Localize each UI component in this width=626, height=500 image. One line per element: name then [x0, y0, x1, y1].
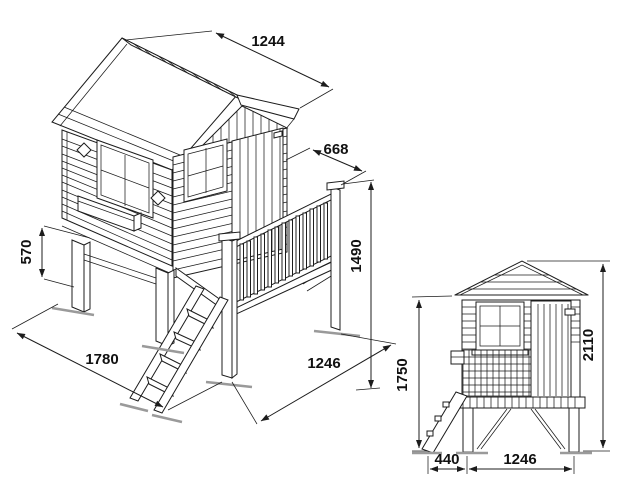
ladder-front [422, 392, 467, 453]
dim-footprint-depth-label: 1780 [85, 351, 118, 368]
dim-footprint-width-label: 1246 [307, 355, 340, 372]
dim-porch-depth: 668 [286, 141, 366, 185]
dim-stilt-height-label: 570 [18, 239, 35, 264]
isometric-view: 1244 668 1490 570 1780 1246 [12, 31, 396, 424]
playhouse-technical-drawing: 1244 668 1490 570 1780 1246 [0, 0, 626, 500]
front-window-elev [472, 302, 528, 355]
door-latch [565, 309, 575, 315]
roof-front [455, 261, 588, 295]
flower-box-side [451, 351, 464, 364]
door-elev [531, 301, 575, 399]
front-wall [451, 300, 580, 399]
dim-ladder-depth-label: 440 [434, 451, 459, 468]
dim-eave-height-label: 1750 [394, 358, 411, 391]
deck-front [457, 397, 585, 408]
leg [569, 408, 579, 452]
porch-post-front [222, 238, 237, 378]
dim-post-height: 1490 [343, 180, 380, 390]
dim-post-height-label: 1490 [348, 239, 365, 272]
dim-ladder-depth: 440 [428, 451, 574, 474]
window-sill [472, 350, 528, 355]
legs-front [463, 408, 579, 452]
drawing-svg: 1244 668 1490 570 1780 1246 [0, 0, 626, 500]
front-elevation-view: 1750 2110 440 1246 [394, 261, 610, 474]
post-cap [327, 181, 344, 190]
dim-total-height-label: 2110 [580, 329, 597, 362]
beam [84, 254, 156, 284]
dim-roof-length-label: 1244 [251, 33, 285, 50]
porch-post [331, 187, 340, 330]
stilt [72, 240, 90, 312]
dim-body-width-label: 1246 [503, 451, 536, 468]
leg [463, 408, 473, 452]
ladder-iso [130, 286, 228, 413]
braces [477, 409, 565, 449]
post-cap [219, 232, 240, 241]
dim-porch-depth-label: 668 [323, 141, 348, 158]
front-window [184, 139, 227, 202]
